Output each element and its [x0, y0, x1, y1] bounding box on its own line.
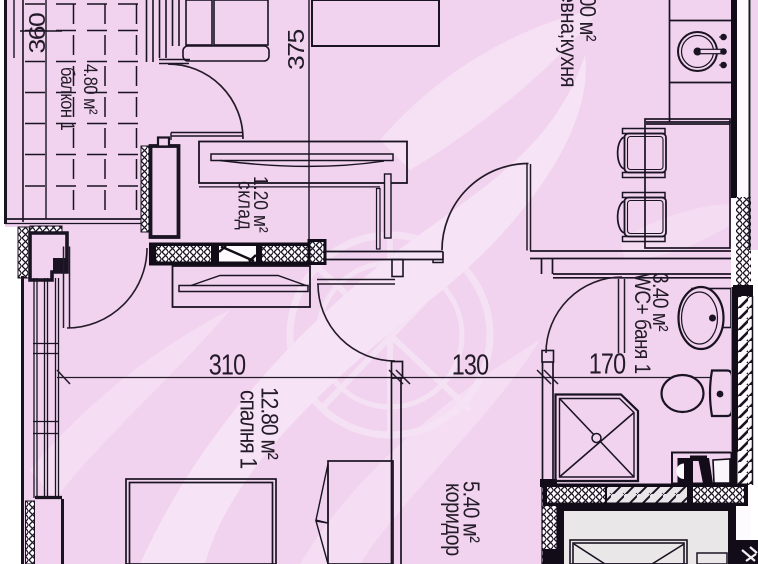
- svg-text:375: 375: [283, 30, 309, 70]
- svg-text:дневна;кухня: дневна;кухня: [556, 0, 583, 87]
- svg-text:360: 360: [24, 13, 50, 53]
- svg-text:балкон 1: балкон 1: [57, 67, 78, 131]
- svg-text:130: 130: [452, 348, 489, 381]
- svg-text:склад: склад: [234, 181, 256, 230]
- svg-text:4.80 м²: 4.80 м²: [80, 64, 101, 115]
- svg-text:WC+ баня 1: WC+ баня 1: [630, 273, 655, 374]
- svg-text:170: 170: [589, 347, 626, 380]
- svg-text:коридор: коридор: [441, 483, 468, 556]
- svg-text:спалня 1: спалня 1: [235, 390, 262, 469]
- svg-text:310: 310: [209, 348, 246, 381]
